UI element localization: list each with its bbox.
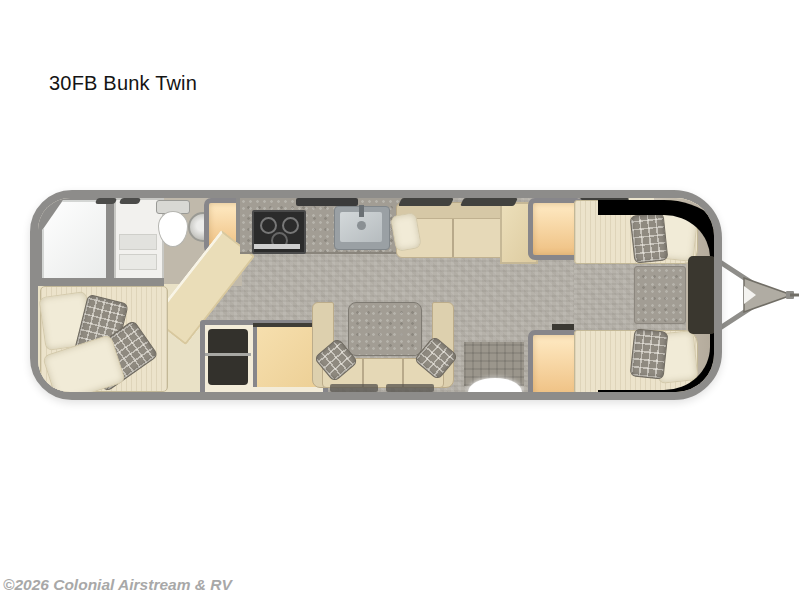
burner-icon <box>260 217 277 234</box>
floor-mat <box>330 384 378 392</box>
wardrobe-cabinet-door <box>253 327 317 387</box>
range-hood-vent <box>296 198 358 206</box>
floor-mat <box>386 384 434 392</box>
dinette-cushion-divider <box>362 359 364 387</box>
burner-icon <box>282 217 299 234</box>
cooktop-front-trim <box>254 244 300 249</box>
sink-drain <box>357 221 366 230</box>
faucet-icon <box>359 205 364 217</box>
trailer-interior <box>38 198 714 392</box>
window-icon <box>398 198 454 206</box>
sofa-cushion-divider <box>452 219 454 257</box>
closet-rod <box>205 353 251 356</box>
window-icon <box>95 198 117 204</box>
window-icon <box>119 198 141 204</box>
dinette-cushion-divider <box>402 359 404 387</box>
bathroom-divider-wall <box>106 198 114 282</box>
kitchen-sink <box>334 206 390 250</box>
window-icon <box>460 198 518 206</box>
rear-wardrobe <box>200 320 328 392</box>
vanity-drawer <box>119 254 157 270</box>
hanging-clothes <box>208 329 248 385</box>
dinette-table <box>348 302 422 356</box>
copyright-watermark: ©2026 Colonial Airstream & RV <box>3 576 232 594</box>
floorplan-title: 30FB Bunk Twin <box>49 72 197 95</box>
floorplan-image: 30FB Bunk Twin <box>0 0 800 600</box>
bathroom-bedroom-wall <box>38 278 164 286</box>
cooktop <box>252 210 306 254</box>
front-trim-bottom <box>598 330 714 392</box>
vanity-shelf <box>119 234 157 250</box>
trailer-body <box>30 190 722 400</box>
front-console <box>688 256 714 334</box>
